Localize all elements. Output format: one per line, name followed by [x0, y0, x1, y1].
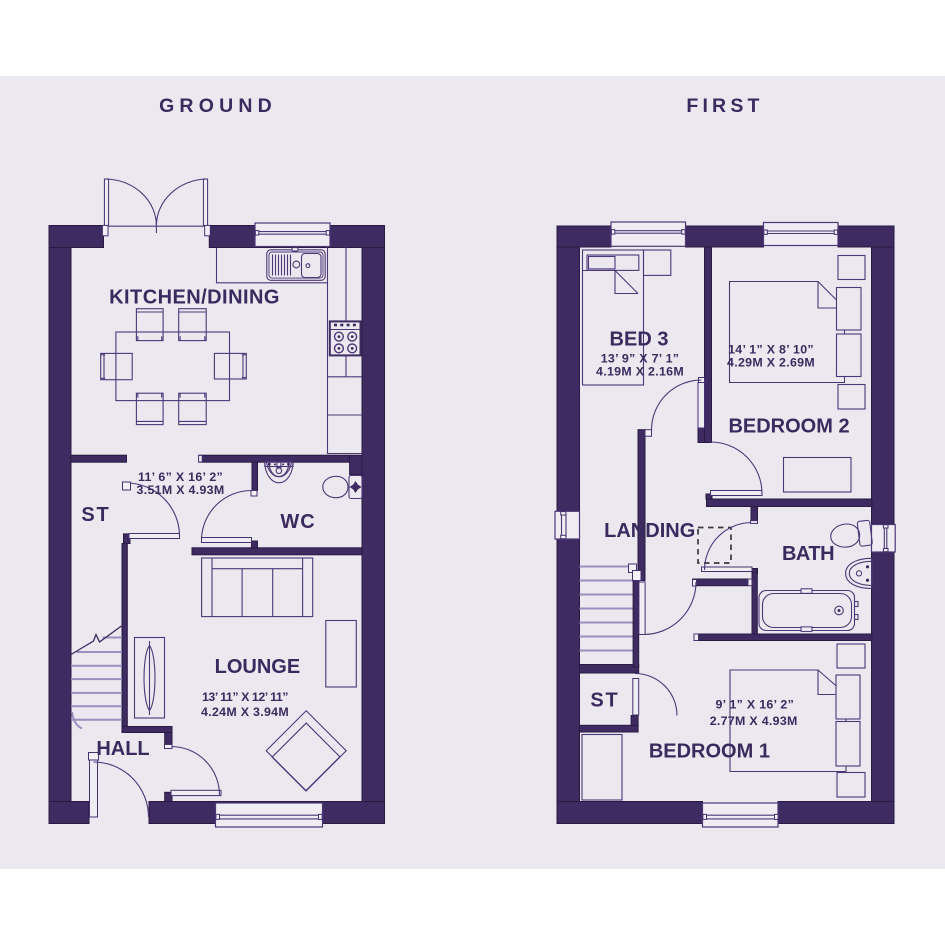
svg-text:13’ 11” X 12’ 11”: 13’ 11” X 12’ 11”: [202, 690, 288, 704]
svg-text:13’ 9” X 7’ 1”: 13’ 9” X 7’ 1”: [601, 351, 680, 365]
svg-text:2.77M X 4.93M: 2.77M X 4.93M: [710, 714, 798, 728]
svg-text:9’ 1” X 16’ 2”: 9’ 1” X 16’ 2”: [715, 698, 794, 712]
svg-text:BATH: BATH: [782, 543, 834, 565]
svg-text:LOUNGE: LOUNGE: [215, 656, 301, 678]
svg-text:GROUND: GROUND: [159, 95, 277, 117]
svg-text:ST: ST: [81, 504, 110, 526]
svg-text:LANDING: LANDING: [604, 520, 695, 542]
svg-text:4.19M X 2.16M: 4.19M X 2.16M: [596, 365, 684, 379]
svg-text:11’ 6” X 16’ 2”: 11’ 6” X 16’ 2”: [138, 470, 223, 484]
svg-text:4.29M X 2.69M: 4.29M X 2.69M: [727, 356, 815, 370]
svg-text:14’ 1” X 8’ 10”: 14’ 1” X 8’ 10”: [728, 342, 814, 356]
svg-text:3.51M X 4.93M: 3.51M X 4.93M: [137, 483, 225, 497]
svg-text:KITCHEN/DINING: KITCHEN/DINING: [109, 287, 280, 309]
svg-text:FIRST: FIRST: [686, 95, 763, 117]
svg-text:WC: WC: [280, 511, 315, 533]
svg-text:BEDROOM 1: BEDROOM 1: [649, 741, 770, 763]
svg-text:ST: ST: [590, 689, 619, 711]
svg-text:4.24M X 3.94M: 4.24M X 3.94M: [201, 705, 289, 719]
svg-text:HALL: HALL: [96, 738, 149, 760]
svg-text:BED 3: BED 3: [610, 329, 669, 351]
svg-text:BEDROOM 2: BEDROOM 2: [728, 416, 849, 438]
